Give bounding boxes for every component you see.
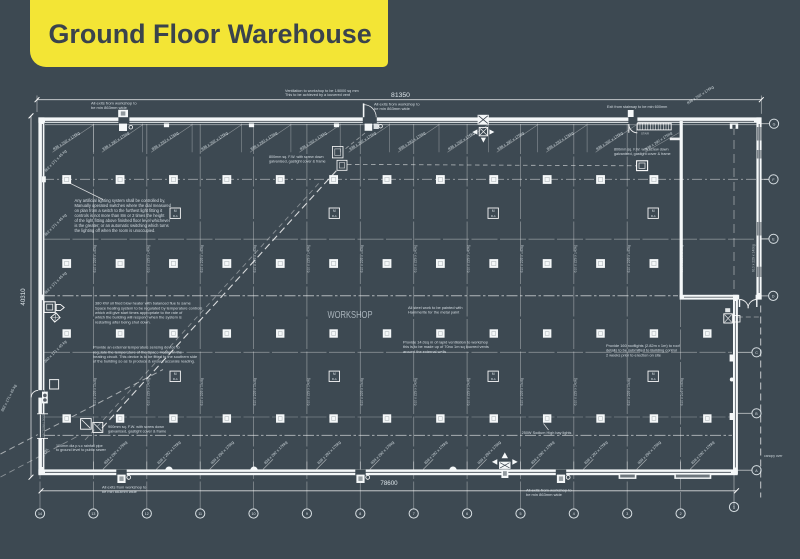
svg-text:4: 4: [573, 512, 575, 516]
svg-text:FLA: FLA: [173, 214, 178, 218]
svg-text:FLA: FLA: [651, 377, 656, 381]
svg-text:610 x 229 x 140kg: 610 x 229 x 140kg: [200, 378, 204, 406]
svg-text:M: M: [333, 372, 336, 376]
svg-text:M: M: [174, 372, 177, 376]
svg-text:800mm sq. F.W. with screw down: 800mm sq. F.W. with screw downgalvanised…: [269, 155, 326, 164]
svg-text:610 x 229 x 140kg: 610 x 229 x 140kg: [627, 245, 631, 273]
svg-text:610 x 229 x 140kg: 610 x 229 x 140kg: [253, 245, 257, 273]
svg-text:All steel work to be painted w: All steel work to be painted withHammeri…: [408, 305, 463, 315]
svg-text:610 x 229 x 140kg: 610 x 229 x 140kg: [360, 378, 364, 406]
svg-text:610 x 229 x 140kg: 610 x 229 x 140kg: [307, 245, 311, 273]
svg-text:1: 1: [733, 506, 735, 510]
svg-text:SECTIONAL DOOR: SECTIONAL DOOR: [41, 413, 45, 437]
svg-text:610 x 229 x 140kg: 610 x 229 x 140kg: [520, 378, 524, 406]
svg-text:canopy over: canopy over: [764, 454, 783, 458]
svg-text:610 x 229 x 140kg: 610 x 229 x 140kg: [200, 245, 204, 273]
svg-text:610 x 229 x 140kg: 610 x 229 x 140kg: [467, 245, 471, 273]
svg-text:610 x 229 x 140kg: 610 x 229 x 140kg: [307, 378, 311, 406]
svg-text:G: G: [773, 122, 776, 126]
svg-text:FLA: FLA: [491, 214, 496, 218]
svg-text:7: 7: [413, 512, 415, 516]
svg-text:2: 2: [680, 512, 682, 516]
svg-text:3: 3: [626, 512, 628, 516]
svg-text:M: M: [652, 372, 655, 376]
svg-text:610 x 229 x 140kg: 610 x 229 x 140kg: [413, 378, 417, 406]
svg-text:610 x 229 x 140kg: 610 x 229 x 140kg: [93, 378, 97, 406]
svg-text:610 x 229 x 140kg: 610 x 229 x 140kg: [467, 378, 471, 406]
svg-text:FLA: FLA: [332, 377, 337, 381]
svg-text:9: 9: [306, 512, 308, 516]
svg-text:FLA: FLA: [491, 377, 496, 381]
svg-text:13: 13: [91, 512, 95, 516]
svg-text:M: M: [174, 209, 177, 213]
svg-text:610 x 229 x 140kg: 610 x 229 x 140kg: [93, 245, 97, 273]
svg-text:250W Sodium High bay lights: 250W Sodium High bay lights: [522, 431, 572, 435]
svg-text:11: 11: [198, 512, 202, 516]
svg-text:610 x 229 x 140kg: 610 x 229 x 140kg: [253, 378, 257, 406]
svg-text:610 x 229 x 140kg: 610 x 229 x 140kg: [146, 378, 150, 406]
svg-text:M: M: [492, 209, 495, 213]
svg-text:FLA: FLA: [173, 377, 178, 381]
svg-text:610 x 229 x 140kg: 610 x 229 x 140kg: [573, 378, 577, 406]
svg-text:STAIR: STAIR: [641, 132, 649, 136]
svg-text:M: M: [652, 209, 655, 213]
svg-text:D: D: [772, 295, 775, 299]
svg-text:610 x 229 x 140kg: 610 x 229 x 140kg: [752, 244, 756, 272]
svg-text:800mm sq. F.W. with screw down: 800mm sq. F.W. with screw downgalvanised…: [614, 147, 671, 155]
svg-text:14: 14: [38, 512, 42, 516]
svg-text:Exit from stairway to be min 6: Exit from stairway to be min 600mm: [607, 105, 667, 109]
svg-text:M: M: [333, 209, 336, 213]
svg-text:Any artificial lighting system: Any artificial lighting system shall be …: [75, 198, 172, 233]
svg-text:610 x 229 x 140kg: 610 x 229 x 140kg: [627, 378, 631, 406]
svg-text:C: C: [755, 351, 758, 355]
svg-text:610 x 229 x 140kg: 610 x 229 x 140kg: [413, 245, 417, 273]
svg-text:610 x 229 x 140kg: 610 x 229 x 140kg: [146, 245, 150, 273]
svg-text:100mm dia p.v.c rainfall pipet: 100mm dia p.v.c rainfall pipeto ground l…: [56, 444, 107, 452]
svg-text:610 x 229 x 140kg: 610 x 229 x 140kg: [360, 245, 364, 273]
svg-text:610 x 229 x 140kg: 610 x 229 x 140kg: [520, 245, 524, 273]
svg-text:610 x 229 x 140kg: 610 x 229 x 140kg: [680, 378, 684, 406]
svg-text:610 x 229 x 140kg: 610 x 229 x 140kg: [573, 245, 577, 273]
svg-text:FLA: FLA: [332, 214, 337, 218]
svg-text:12: 12: [145, 512, 149, 516]
svg-text:Ventilation to workshop to be: Ventilation to workshop to be 1/8000 sq …: [285, 89, 359, 97]
svg-text:6: 6: [466, 512, 468, 516]
svg-text:10: 10: [252, 512, 256, 516]
svg-text:40310: 40310: [20, 288, 27, 306]
svg-text:5: 5: [520, 512, 522, 516]
svg-text:FLA: FLA: [651, 214, 656, 218]
svg-text:81350: 81350: [391, 92, 410, 99]
svg-text:900mm sq. F.W. with screw down: 900mm sq. F.W. with screw downgalvanised…: [108, 425, 166, 434]
svg-text:WORKSHOP: WORKSHOP: [328, 310, 373, 321]
svg-text:78600: 78600: [380, 480, 398, 487]
svg-text:8: 8: [359, 512, 361, 516]
svg-text:M: M: [492, 372, 495, 376]
